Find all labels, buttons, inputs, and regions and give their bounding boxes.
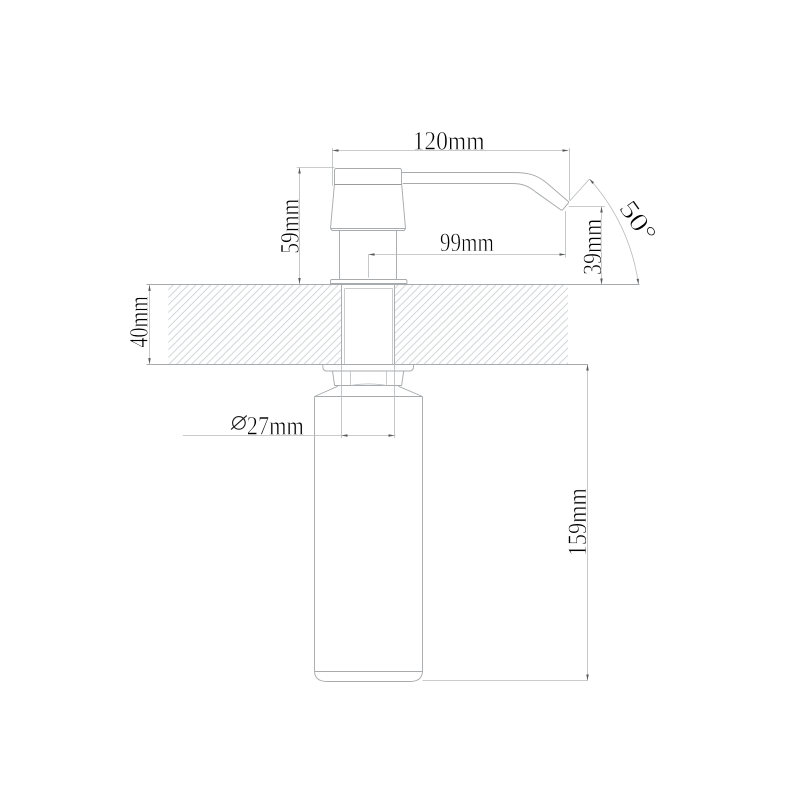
svg-text:120mm: 120mm	[413, 127, 485, 156]
svg-text:59mm: 59mm	[276, 199, 305, 254]
svg-text:40mm: 40mm	[124, 296, 153, 348]
svg-text:99mm: 99mm	[440, 228, 494, 257]
svg-text:27mm: 27mm	[247, 411, 304, 440]
svg-text:159mm: 159mm	[563, 488, 592, 556]
svg-text:50°: 50°	[613, 195, 662, 248]
svg-text:39mm: 39mm	[578, 219, 607, 275]
